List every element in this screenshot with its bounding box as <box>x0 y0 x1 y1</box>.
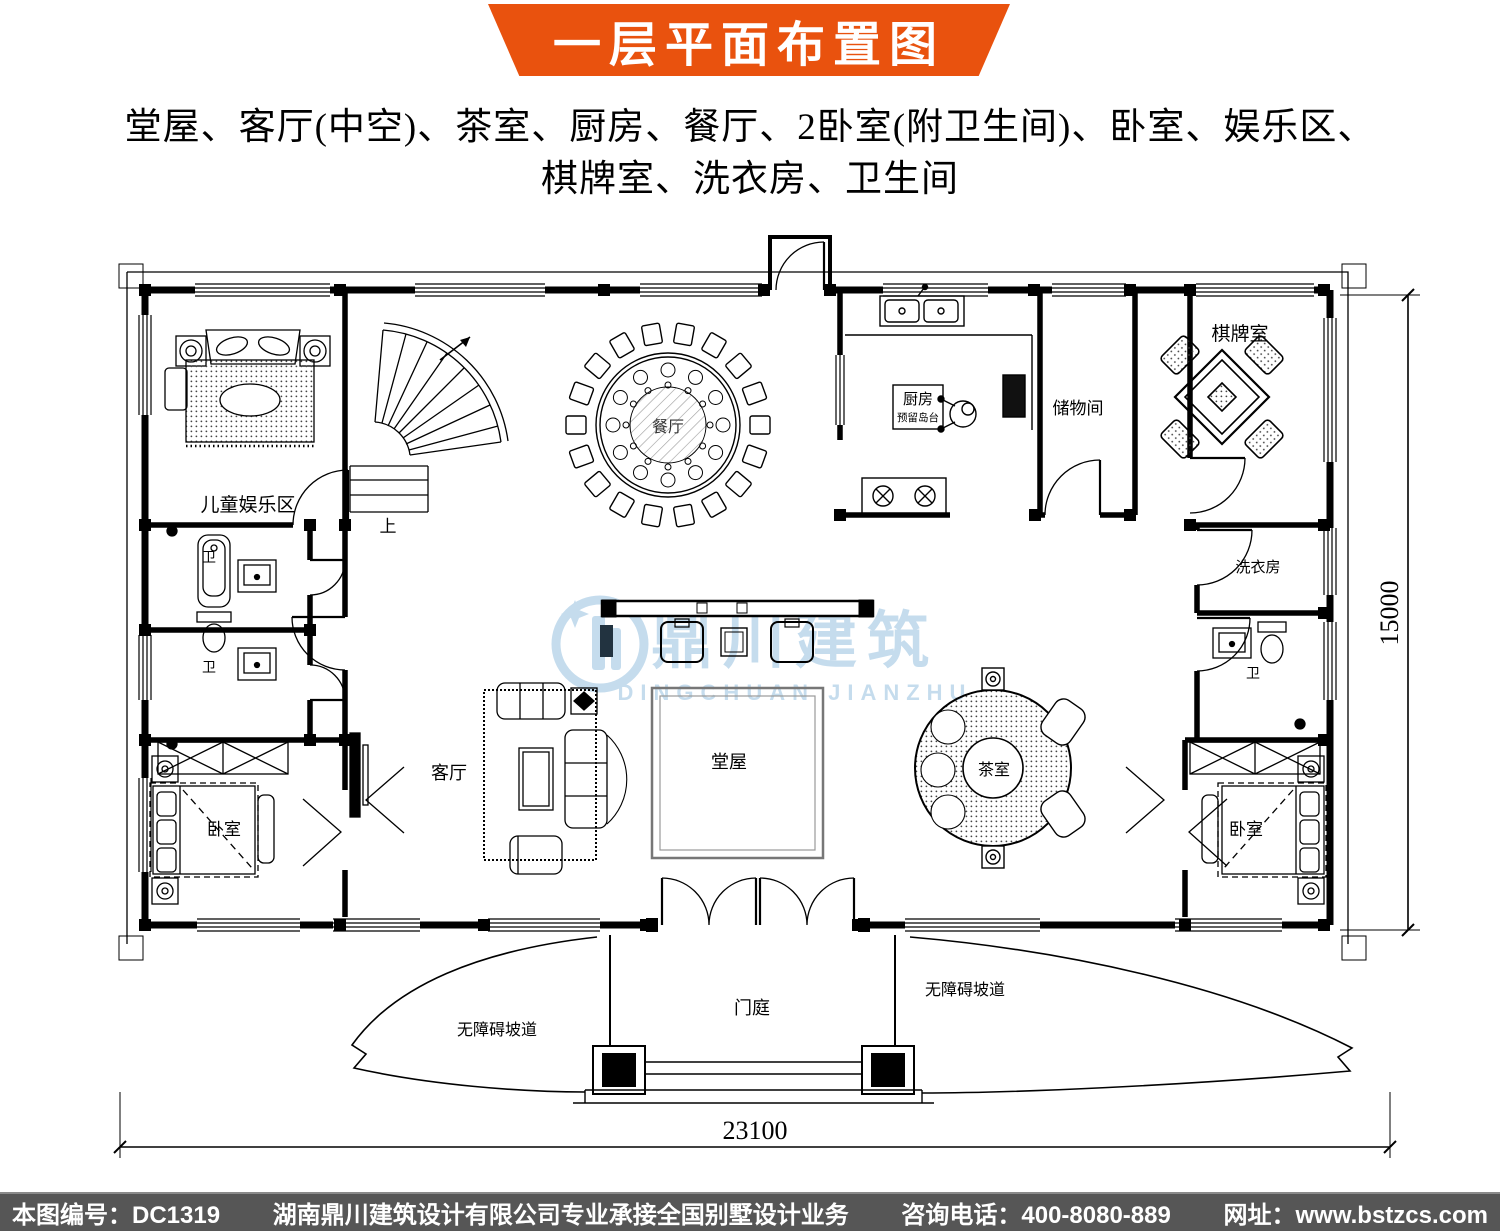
watermark-en: DINGCHUAN JIANZHU <box>618 680 973 705</box>
room-label-porch: 门庭 <box>734 998 770 1018</box>
staircase <box>350 323 508 512</box>
room-label-laundry: 洗衣房 <box>1235 559 1280 576</box>
room-label-kitchen: 厨房 <box>903 391 933 408</box>
dimension-height: 15000 <box>1375 581 1404 646</box>
room-label-bath-1: 卫 <box>202 551 216 566</box>
room-label-chess-room: 棋牌室 <box>1211 323 1268 345</box>
room-label-ramp-right: 无障碍坡道 <box>925 981 1005 999</box>
page: 一层平面布置图 堂屋、客厅(中空)、茶室、厨房、餐厅、2卧室(附卫生间)、卧室、… <box>0 0 1500 1231</box>
ramps <box>352 937 1352 1093</box>
room-label-kitchen-island: 预留岛台 <box>897 411 939 424</box>
dimension-width: 23100 <box>723 1116 788 1145</box>
footer-phone: 咨询电话：400-8080-889 <box>901 1195 1170 1230</box>
room-label-children-area: 儿童娱乐区 <box>200 494 295 516</box>
left-bath-fixtures <box>167 526 276 749</box>
room-label-hall: 堂屋 <box>711 752 747 772</box>
room-label-living: 客厅 <box>431 763 467 783</box>
entrance-porch <box>573 935 934 1103</box>
footer-website: 网址：www.bstzcs.com <box>1224 1195 1489 1230</box>
walls <box>145 237 1330 925</box>
chess-table <box>1159 334 1284 459</box>
footer-drawing-no: 本图编号：DC1319 <box>12 1195 220 1230</box>
footer-bar: 本图编号：DC1319 湖南鼎川建筑设计有限公司专业承接全国别墅设计业务 咨询电… <box>0 1192 1500 1231</box>
watermark-cn: 鼎川建筑 <box>651 607 939 676</box>
floor-plan-drawing: 鼎川建筑 DINGCHUAN JIANZHU <box>0 0 1500 1231</box>
room-label-storage: 储物间 <box>1053 399 1104 418</box>
room-label-stairs-up: 上 <box>380 517 397 536</box>
children-bed <box>165 330 330 446</box>
room-label-bath-3: 卫 <box>1246 667 1260 682</box>
footer-company: 湖南鼎川建筑设计有限公司专业承接全国别墅设计业务 <box>273 1195 849 1230</box>
kitchen-fixtures <box>845 285 1032 515</box>
room-label-bedroom-right: 卧室 <box>1229 820 1263 839</box>
room-label-ramp-left: 无障碍坡道 <box>457 1021 537 1039</box>
room-label-bath-2: 卫 <box>202 661 216 676</box>
room-label-tea-room: 茶室 <box>978 761 1010 779</box>
room-label-dining: 餐厅 <box>652 418 684 436</box>
room-label-bedroom-left: 卧室 <box>207 820 241 839</box>
